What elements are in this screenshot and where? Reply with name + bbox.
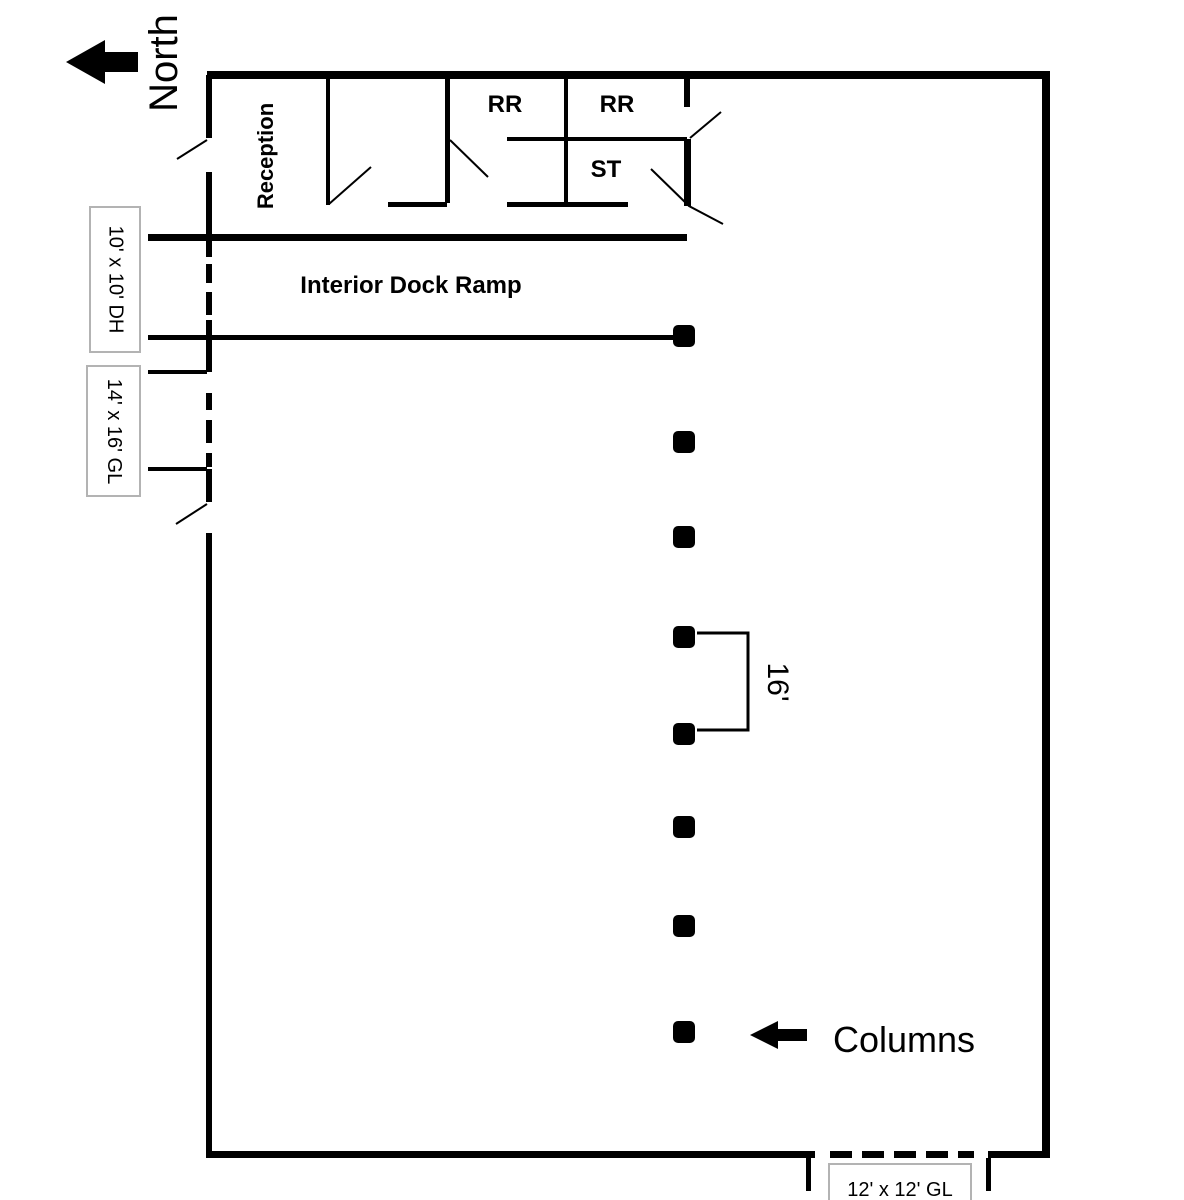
room-label-storage: ST bbox=[591, 158, 622, 182]
west-door-jamb-tick bbox=[148, 467, 207, 471]
wall-segment bbox=[206, 469, 212, 502]
wall-segment bbox=[206, 172, 212, 257]
wall-segment bbox=[326, 75, 330, 205]
door-dash bbox=[206, 292, 212, 315]
wall-segment bbox=[206, 533, 212, 1158]
column-marker bbox=[673, 1021, 695, 1043]
door-dash bbox=[894, 1151, 916, 1158]
room-label-restroom-1: RR bbox=[488, 93, 523, 117]
columns-arrow-icon bbox=[750, 1021, 807, 1049]
column-marker bbox=[673, 915, 695, 937]
door-dash bbox=[958, 1151, 974, 1158]
door-dash bbox=[830, 1151, 852, 1158]
column-marker bbox=[673, 325, 695, 347]
wall-segment bbox=[684, 75, 690, 107]
grade-level-west-door-label: 14' x 16' GL bbox=[102, 378, 125, 483]
door-swing-line bbox=[329, 167, 371, 204]
door-swing-line bbox=[176, 504, 207, 524]
door-swing-line bbox=[690, 112, 721, 138]
dock-ramp-wall-south bbox=[148, 335, 677, 340]
south-door-jamb-tick bbox=[806, 1158, 811, 1191]
column-marker bbox=[673, 626, 695, 648]
door-swing-line bbox=[177, 140, 207, 159]
floor-plan: North Reception RR RR ST Interior Dock R… bbox=[0, 0, 1184, 1200]
column-marker bbox=[673, 816, 695, 838]
column-marker bbox=[673, 431, 695, 453]
column-marker bbox=[673, 723, 695, 745]
wall-segment bbox=[206, 75, 212, 138]
door-dash bbox=[862, 1151, 884, 1158]
south-door-jamb-tick bbox=[986, 1158, 991, 1191]
dock-high-door-label: 10' x 10' DH bbox=[104, 226, 127, 334]
wall-bottom-right bbox=[988, 1151, 1050, 1158]
dock-high-door-label-box: 10' x 10' DH bbox=[89, 206, 141, 353]
wall-segment bbox=[507, 137, 687, 141]
column-spacing-dimension: 16' bbox=[762, 662, 792, 701]
grade-level-south-door-label-box: 12' x 12' GL bbox=[828, 1163, 972, 1200]
wall-bottom-left bbox=[207, 1151, 815, 1158]
north-arrow-icon bbox=[66, 40, 138, 84]
dock-ramp-wall-north bbox=[148, 234, 687, 241]
room-label-reception: Reception bbox=[255, 103, 277, 209]
wall-segment bbox=[445, 75, 450, 203]
grade-level-west-door-label-box: 14' x 16' GL bbox=[86, 365, 141, 497]
door-dash bbox=[206, 264, 212, 283]
door-dash bbox=[206, 420, 212, 443]
grade-level-south-door-label: 12' x 12' GL bbox=[847, 1179, 952, 1200]
door-dash bbox=[206, 393, 212, 410]
west-door-jamb-tick bbox=[148, 370, 207, 374]
wall-segment bbox=[206, 320, 212, 372]
dimension-bracket bbox=[697, 633, 748, 730]
column-marker bbox=[673, 526, 695, 548]
wall-right bbox=[1042, 71, 1050, 1158]
wall-segment bbox=[684, 139, 691, 206]
interior-dock-ramp-label: Interior Dock Ramp bbox=[300, 274, 521, 298]
columns-annotation: Columns bbox=[833, 1022, 975, 1058]
door-dash bbox=[926, 1151, 948, 1158]
wall-segment bbox=[507, 202, 628, 207]
door-dash bbox=[206, 453, 212, 467]
north-label: North bbox=[144, 14, 184, 112]
wall-segment bbox=[388, 202, 447, 207]
door-swing-line bbox=[450, 140, 488, 177]
south-door-dashes bbox=[830, 1151, 974, 1158]
room-label-restroom-2: RR bbox=[600, 93, 635, 117]
wall-top bbox=[207, 71, 1050, 79]
